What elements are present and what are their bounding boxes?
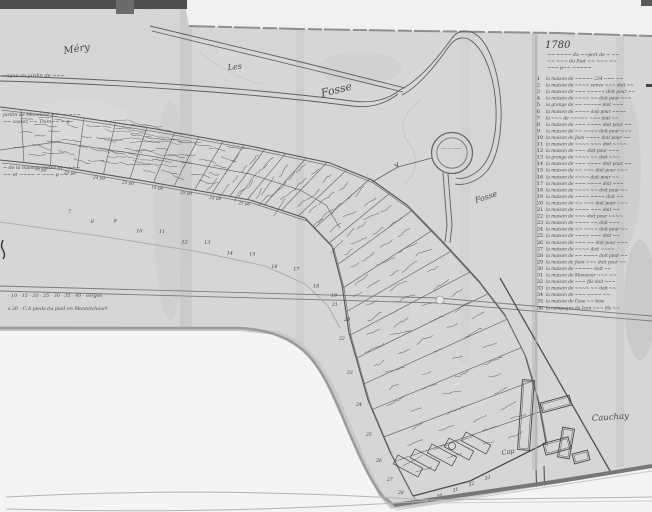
legend-header-line: ~~ ~~~ du Sud ~~ ~~~ ~~ [547,58,617,64]
legend-entry-number: 19 [537,194,543,200]
legend-entry-number: 5 [537,102,540,108]
legend-entry-number: 8 [537,122,540,128]
legend-entry: la maison de ~~ ~~~ doit pour ~~~ [546,169,628,174]
legend-entry-number: 24 [537,227,543,233]
legend-entry-number: 6 [537,109,540,115]
legend-entry-number: 33 [537,286,543,292]
legend-entry: la maison de Jean ~~~~ doit pour ~~ [546,136,631,141]
plot-number-bend: 26 [375,458,382,464]
legend-entry: la maison de ~~~~ venve ~~~ doit ~~ [546,84,634,89]
plot-number-bend: 23 [346,370,353,376]
plot-number-bend: 28 [397,490,404,496]
legend-entry-number: 16 [537,174,543,180]
plot-number: 8 [91,219,94,225]
legend-entry: la maison de ~~~ doit pour ~~~~ [546,215,623,220]
legend-entry: la grange de ~~~~ ~~ doit ~~~ [546,156,620,161]
legend-entry-number: 31 [537,273,543,279]
plot-number-bend: 21 [331,302,338,308]
plot-number: 10 [136,229,143,235]
legend-entry-number: 11 [537,142,543,148]
plot-number: 18 [313,283,319,289]
plot-number: 17 [293,267,300,273]
legend-entry: la maison de ~~~~ ~~~ doit ~~~~ [546,143,627,148]
photo-dark-bar [0,0,187,9]
plot-number: 15 [249,251,255,257]
label-les: Les [226,62,242,73]
legend-entry-number: 3 [537,89,540,95]
legend-entry: la maison de ~~~~ ~~ doit ~~~ [546,221,620,226]
legend-entry-number: 27 [537,246,543,252]
legend-entry-number: 25 [537,233,543,239]
plot-number: 12 [181,239,187,245]
legend-entry-number: 22 [537,214,543,220]
plot-number-bend: 25 [365,432,372,438]
map-photo-canvas: 789101112131415161718192030 pd25 pd24 pd… [0,0,652,512]
note-circle: ~~ ~ ~~~ [441,147,461,151]
legend-entry: la maison de ~~~ ~~ doit pour ~~~ [546,241,628,246]
plot-number: 11 [159,229,165,235]
plot-number: 19 [331,293,338,299]
legend-entry-number: 7 [537,115,540,121]
legend-entry: la maison de ~~~~ ~~ doit pour ~~ [546,188,628,193]
legend-entry: la maison de ~~~~ doit pour ~~ [546,175,620,180]
legend-entry-number: 20 [537,200,543,206]
legend-entry-number: 35 [537,299,543,305]
note-block-b2: ~~ et ~~~~ ~ ~~~ p ~~ [3,172,68,178]
legend-entry: la maison de ~~ ~~~ doit pour ~~~ [546,201,628,206]
legend-entry: la maison de ~~~ ~~~~ doit ~~~ [546,182,624,187]
plot-number: 16 [271,264,278,270]
legend-entry: la maison de ~~~ doit pour ~~~ [546,149,620,154]
note-left-margin: ~ague au jardin de ~~~ [2,73,65,79]
legend-entry: la maison de ~~~ ~~~~ doit pour ~~ [546,123,632,128]
legend-entry-number: 13 [537,155,543,161]
legend-entry: la maison de ~~ ~~~~ doit pour ~~ [546,254,628,259]
legend-entry: la ~~~ de ~~~~~ ~~~ doit ~~ [546,116,619,121]
plot-number: 14 [227,251,233,257]
legend-header-line: ~~ ~~~~ du ~~port de ~ ~~ [547,52,620,58]
legend-entry: la maison de ~~~ ~~~~ ~~ [546,293,610,298]
plot-number-bend: 24 [355,402,362,408]
legend-entry: la maison de ~~~ ~~~~ doit pour ~~ [546,162,632,167]
legend-entry-number: 10 [537,135,543,141]
legend-entry-number: 15 [537,168,543,174]
legend-entry-number: 29 [537,259,543,265]
legend-entry-number: 2 [537,83,540,89]
legend-entry: la maison de ~~ ~~~~ doit pour ~~~ [546,129,632,134]
legend-entry: la maison de ~~~~ doit pour ~~~~ [546,110,627,115]
plot-number: 13 [204,240,210,246]
note-scale-1: · 10 · 15 · 20 · 25 · 30 · 35 · 40 · ver… [8,293,103,299]
legend-entry: la maison de ~~~~ ~~~ doit ~~ [546,234,620,239]
note-block-a1: jardin de Monsieur ~~~~ ~~~ [2,112,81,118]
legend-entry: la maison de ~~~ fils doit ~~~ [546,280,616,285]
note-scale-2: s 20 · C.A pieds du pied en Montelchéart [8,305,107,312]
plot-number-bend: 22 [338,336,345,342]
legend-entry: la maison de Case ~~ bois [546,300,605,305]
legend-entry: la maison de ~~~~ ~~ doit ~~ [546,287,617,292]
legend-entry-number: 32 [537,279,543,285]
legend-entry-number: 17 [537,181,543,187]
legend-entry-number: 14 [537,161,543,167]
legend-entry-number: 28 [537,253,543,259]
legend-entry-number: 1 [537,76,540,82]
legend-entry-number: 34 [537,292,543,298]
photo-corner-mark [641,0,652,6]
legend-entry: la maison de ~~~~ ~~~~ doit ~~ [546,195,624,200]
plot-number-bend: 27 [386,477,393,483]
legend-entry: la maison de ~~~~ doit ~~~~ [546,247,615,252]
legend-entry: la maison de ~~ ~~~~ doit pour ~~ [546,228,628,233]
historic-map-photo: { "document": { "kind": "photograph of a… [0,0,652,512]
legend-entry-number: 18 [537,187,543,193]
legend-entry-number: 30 [537,266,543,272]
legend-entry-number: 4 [537,96,540,102]
right-edge-tick [646,84,652,87]
legend-entry: la maison de Jean ~~~ doit pour ~~ [546,260,627,265]
plot-number: 20 [343,317,351,323]
legend-entry: la maison de ~~~~ ~~~ doit ~~ [546,208,620,213]
note-block-a2: ~~ costez ~~ Thim~~ ~ p~ [3,119,74,125]
legend-entry-number: 9 [537,128,540,134]
note-block-b1: ~ de la maison costez et ~~~~ [3,165,80,171]
legend-entry: la maison de ~~~~ ~~ doit pour ~~~ [546,97,632,102]
legend-entry: la maison de ~~~~~ 234 ~~~ ~~ [546,77,624,82]
legend-entry-number: 36 [537,305,543,311]
legend-entry-number: 26 [537,240,543,246]
legend-entry: la maison de ~~~ ~~~~~ doit pour ~~ [546,90,635,95]
legend-header-line: ~~~ p~~ ~~~~~ [547,66,592,71]
legend-entry: la maison de ~~~~~ doit ~~ [546,267,612,272]
legend-entry: la grange de ~~ ~~~~~ doit ~~~ [546,103,624,108]
legend-entry-number: 23 [537,220,543,226]
legend-entry: la campagne de Jean ~~~ fils ~~ [546,306,620,311]
legend-entry-number: 12 [537,148,543,154]
legend-year: 1780 [545,40,571,51]
photo-dark-tab [116,0,134,14]
legend-entry: la maison de Monsieur ~~~ ~~ [546,274,617,279]
legend-entry-number: 21 [537,207,543,213]
